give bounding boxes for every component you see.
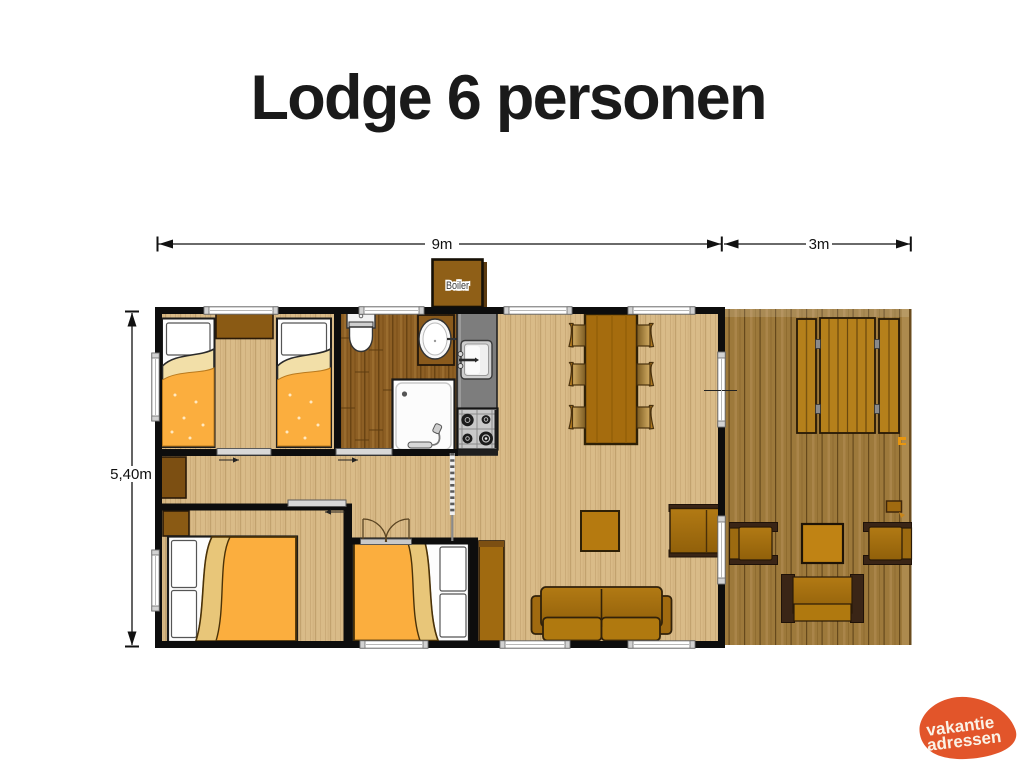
svg-text:Boiler: Boiler bbox=[446, 280, 469, 292]
svg-text:5,40m: 5,40m bbox=[110, 466, 152, 483]
svg-text:Lodge 6 personen: Lodge 6 personen bbox=[251, 63, 768, 133]
svg-text:9m: 9m bbox=[432, 236, 453, 253]
svg-text:3m: 3m bbox=[809, 236, 830, 253]
